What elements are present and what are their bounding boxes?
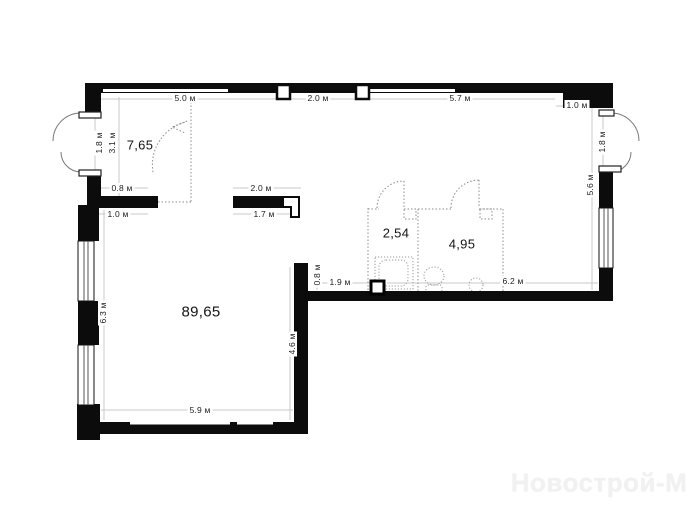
dim-top-2: 2.0 м <box>305 93 330 103</box>
hallway-partition-dashed <box>152 95 191 203</box>
window-left-upper <box>78 241 94 301</box>
window-right <box>599 208 613 268</box>
dim-left-door: 1.8 м <box>94 130 104 155</box>
dim-left-hall: 3.1 м <box>107 130 117 155</box>
room-area-bath-large: 4,95 <box>449 237 476 252</box>
exterior-walls <box>77 83 613 440</box>
dim-top-1: 5.0 м <box>172 93 197 103</box>
dim-stub-bottom: 1.7 м <box>251 209 276 219</box>
dim-inner-bottom-2: 6.2 м <box>500 276 525 286</box>
dim-step-1: 0.8 м <box>109 183 134 193</box>
dim-inner-bottom-1: 1.9 м <box>327 277 352 287</box>
room-area-hall: 7,65 <box>127 138 154 153</box>
dim-stub-top: 2.0 м <box>248 183 273 193</box>
dim-right-wall: 5.6 м <box>585 172 595 197</box>
toilet <box>424 267 444 292</box>
sink <box>469 278 483 292</box>
dim-top-4: 1.0 м <box>564 100 589 110</box>
dim-main-bottom: 5.9 м <box>187 405 212 415</box>
plumbing-fixtures <box>375 257 483 292</box>
window-left-lower <box>78 345 94 405</box>
dim-top-3: 5.7 м <box>447 93 472 103</box>
developer-watermark: Новострой-М <box>511 468 688 499</box>
dim-left-main: 6.3 м <box>98 300 108 325</box>
floor-plan-drawing <box>0 0 700 525</box>
plumbing-shaft <box>371 281 384 294</box>
dim-step-2: 1.0 м <box>105 209 130 219</box>
dim-right-door: 1.8 м <box>597 129 607 154</box>
dim-inner-wall: 0.8 м <box>312 262 322 287</box>
dimension-lines <box>95 97 603 420</box>
room-area-main: 89,65 <box>181 304 220 321</box>
dim-main-right: 4.6 м <box>287 331 297 356</box>
room-area-bath-small: 2,54 <box>383 226 410 241</box>
floor-plan: 5.0 м 2.0 м 5.7 м 1.0 м 1.8 м 3.1 м 0.8 … <box>0 0 700 525</box>
